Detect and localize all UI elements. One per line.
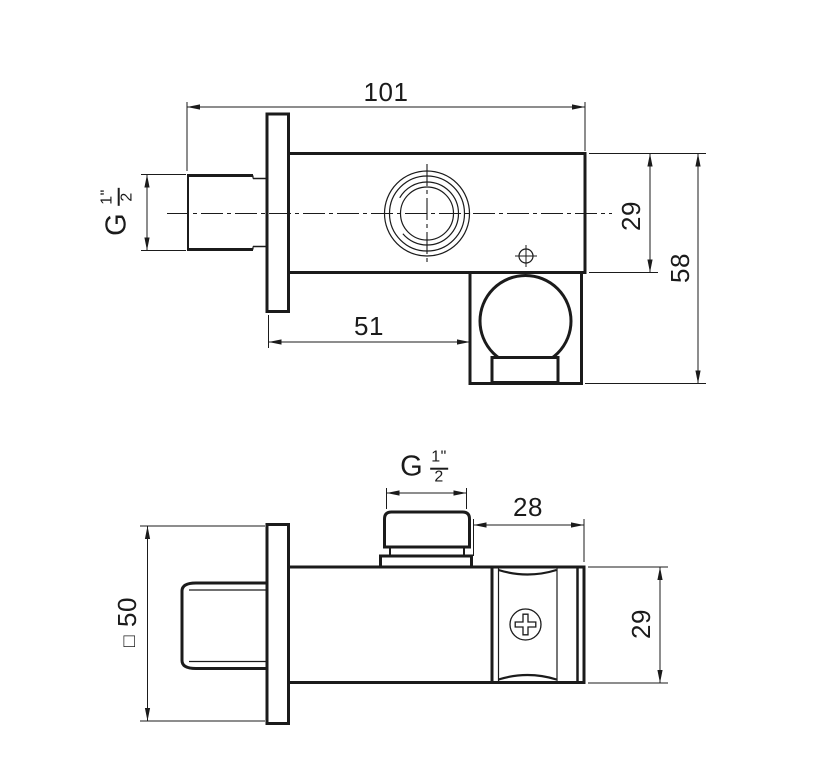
- arrowhead: [474, 522, 487, 527]
- arrowhead: [657, 670, 662, 683]
- front-wall-plate: [267, 114, 289, 312]
- side-wall-plate: [267, 525, 289, 724]
- ball-clamp: [492, 358, 558, 383]
- arrowhead: [145, 526, 150, 539]
- arrowhead: [647, 260, 652, 273]
- ball-joint: [480, 276, 571, 367]
- thread-fraction: 1" 2: [430, 450, 448, 487]
- arrowhead: [571, 522, 584, 527]
- dim-thread-side: [387, 488, 467, 509]
- thread-prefix: G: [400, 453, 423, 482]
- square-symbol: □: [120, 635, 139, 647]
- side-inlet-spigot: [182, 583, 267, 669]
- arrowhead: [454, 490, 467, 495]
- arrowhead: [269, 339, 282, 344]
- front-inlet-spigot: [187, 174, 267, 251]
- arrowhead: [187, 104, 200, 109]
- front-view: [167, 114, 612, 384]
- dim-29-front-label: 29: [618, 201, 644, 231]
- arrowhead: [144, 175, 149, 188]
- thread-prefix: G: [103, 213, 132, 236]
- arrowhead: [387, 490, 400, 495]
- arrowhead: [457, 339, 470, 344]
- arrowhead: [647, 154, 652, 167]
- dim-51-label: 51: [354, 313, 384, 339]
- dim-58-label: 58: [667, 253, 693, 283]
- arrowhead: [657, 567, 662, 580]
- thread-fraction: 1" 2: [100, 188, 137, 206]
- dim-28-label: 28: [513, 494, 543, 520]
- dim-101-label: 101: [364, 79, 409, 105]
- dim-thread-front: [141, 175, 186, 251]
- outlet-thread-label-side: G 1" 2: [400, 449, 448, 486]
- arrowhead: [144, 238, 149, 251]
- front-holder-bracket: [469, 273, 584, 384]
- arrowhead: [695, 371, 700, 384]
- inlet-thread-label-front: G 1" 2: [99, 188, 136, 236]
- dim-50-label: □50: [114, 597, 140, 647]
- dim-28: [474, 519, 585, 562]
- outlet-nipple: [381, 512, 472, 567]
- arrowhead: [572, 104, 585, 109]
- arrowhead: [695, 154, 700, 167]
- dim-29-side-label: 29: [628, 609, 654, 639]
- side-view: [182, 512, 584, 724]
- technical-drawing-page: 101 G 1" 2 29 58 51 G 1" 2 28 29 □50: [0, 0, 834, 760]
- arrowhead: [145, 708, 150, 721]
